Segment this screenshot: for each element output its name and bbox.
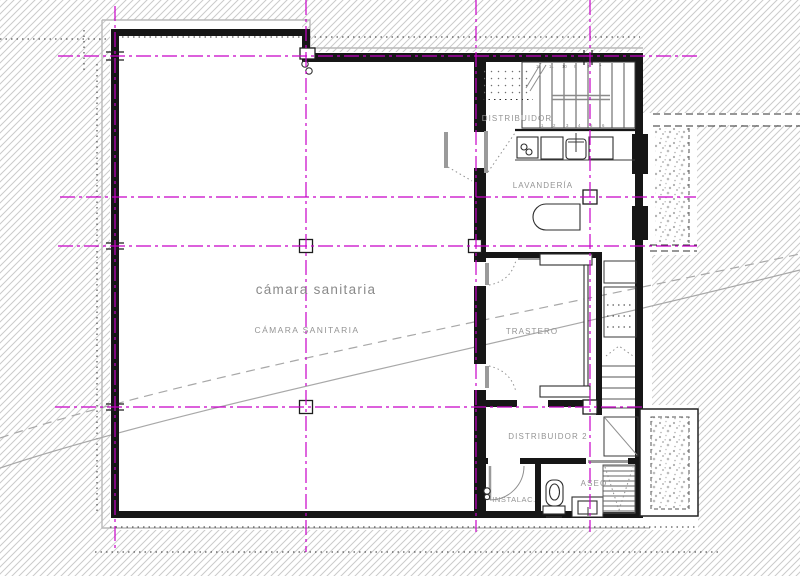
door-slide-aseo	[588, 460, 628, 463]
shelf-bottom	[540, 386, 590, 397]
step-number: 9	[574, 64, 577, 69]
wall-trastero-bottom-a	[474, 400, 517, 407]
wall-distribuidor2-bottom-a	[481, 458, 488, 464]
step-number: 1	[541, 123, 544, 128]
step-number: 4	[578, 123, 581, 128]
terrain-hatch-bottom	[110, 530, 700, 576]
washer-fixture-b	[589, 137, 613, 159]
wall-pilaster-upper	[632, 134, 648, 174]
aseo-fixtures	[484, 465, 635, 517]
downpipe-circle-b	[306, 68, 312, 74]
step-number: 12	[536, 64, 541, 69]
staircase-lower	[602, 261, 638, 456]
terrain-hatch-right-upper	[697, 125, 800, 255]
downpipe-symbol	[302, 61, 312, 74]
building-walls	[111, 29, 648, 518]
wall-stair-corridor	[596, 258, 602, 415]
bathtub-fixture	[533, 204, 580, 230]
step-number: 2	[553, 123, 556, 128]
door-swing-lavanderia	[488, 133, 515, 172]
utility-sink-tap-b	[526, 149, 532, 155]
paving-dot-area	[484, 67, 528, 98]
stair-ramp-diagonal	[605, 418, 637, 455]
washer-fixture-a	[541, 137, 563, 159]
wall-instalac-aseo	[535, 464, 541, 518]
column-marker	[300, 48, 315, 59]
instalac-equipment-a	[484, 488, 490, 494]
step-number: 11	[549, 64, 554, 69]
wall-pilaster-lower	[632, 206, 648, 240]
stair-lower-landing	[604, 287, 636, 337]
door-swing-trastero-top	[489, 260, 516, 285]
wall-distribuidor2-bottom-b	[520, 458, 586, 464]
structural-columns	[106, 48, 597, 414]
door-leaf-trastero-top	[485, 263, 489, 285]
door-leaf-lavanderia	[484, 131, 488, 173]
terrain-hatch-top-center	[302, 0, 643, 52]
utility-sink-tap-a	[521, 144, 527, 150]
room-label-distribuidor: DISTRIBUIDOR	[482, 114, 553, 123]
wall-top-left	[111, 29, 310, 36]
step-number: 10	[562, 64, 567, 69]
instalac-equipment-b	[484, 494, 489, 499]
toilet-bowl-inner	[550, 484, 560, 500]
door-swing-trastero-bottom	[489, 366, 516, 392]
toilet-tank	[543, 506, 565, 514]
stair-direction-chevron	[606, 346, 633, 356]
shelf-partition	[584, 265, 588, 386]
terrain-hatch-top-left	[110, 0, 302, 20]
door-swing-camara	[448, 167, 472, 181]
step-number: 3	[566, 123, 569, 128]
terrain-hatch-right-mid	[652, 255, 800, 405]
room-label-lavanderia: LAVANDERÍA	[513, 181, 574, 190]
room-label-trastero: TRASTERO	[506, 327, 558, 336]
step-number: 7	[599, 64, 602, 69]
room-label-camara-caps: CÁMARA SANITARIA	[255, 325, 360, 335]
shower-fixture	[603, 465, 635, 513]
floor-plan-drawing: 12 11 10 9 8 7 1 2 3 4 5 6	[0, 0, 800, 576]
staircase-step-numbers-bottom: 1 2 3 4 5 6	[541, 123, 605, 128]
distribuidor-paving	[483, 67, 533, 100]
shelf-top	[540, 254, 592, 265]
stair-lower-steps	[602, 366, 635, 408]
trastero-shelving	[518, 254, 592, 397]
wall-tick-marks	[106, 50, 592, 410]
room-label-instalac: INSTALAC.	[492, 495, 536, 504]
gravel-band-upper	[655, 128, 689, 243]
gravel-band-lower	[651, 417, 689, 509]
stair-lower-top-box	[604, 261, 636, 283]
door-leaf-camara	[444, 132, 448, 168]
terrain-hatch-right-lower	[698, 405, 800, 576]
step-number: 6	[602, 123, 605, 128]
terrain-hatch-left	[0, 0, 110, 576]
room-label-aseo: ASEO	[581, 479, 608, 488]
room-label-camara-title: cámara sanitaria	[256, 282, 377, 297]
door-leaf-trastero-bottom	[485, 366, 489, 388]
room-labels: cámara sanitaria CÁMARA SANITARIA DISTRI…	[255, 114, 608, 504]
room-label-distribuidor2: DISTRIBUIDOR 2	[508, 432, 587, 441]
floor-plan-canvas: 12 11 10 9 8 7 1 2 3 4 5 6	[0, 0, 800, 576]
